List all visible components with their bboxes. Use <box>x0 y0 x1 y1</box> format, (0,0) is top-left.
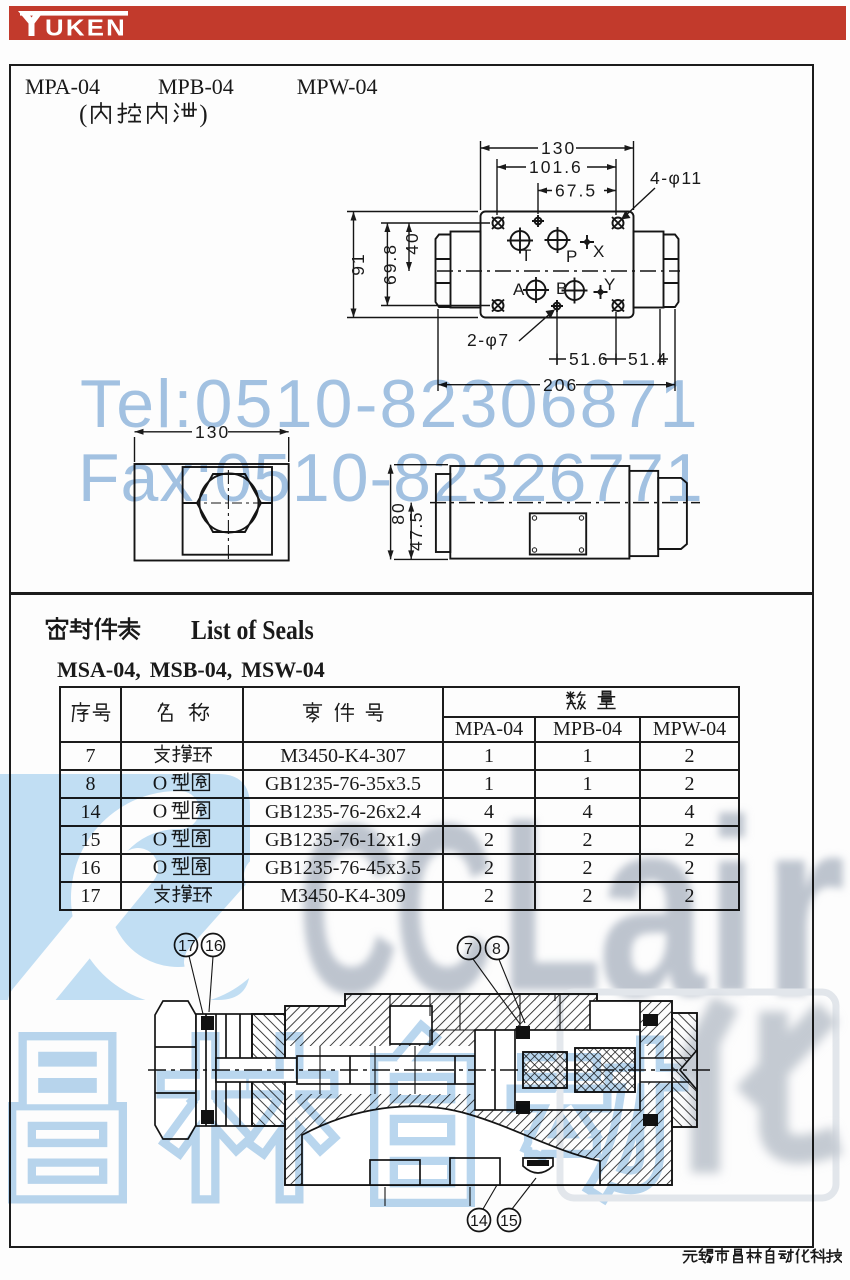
svg-text:130: 130 <box>541 138 576 158</box>
svg-text:A: A <box>513 280 525 299</box>
svg-text:7: 7 <box>464 941 473 958</box>
svg-text:2-φ7: 2-φ7 <box>467 330 510 350</box>
svg-text:206: 206 <box>543 375 578 395</box>
svg-text:51.4: 51.4 <box>628 349 668 369</box>
svg-text:17: 17 <box>178 938 196 955</box>
svg-text:B: B <box>556 279 567 298</box>
svg-text:P: P <box>566 247 577 266</box>
svg-text:Y: Y <box>604 275 615 294</box>
svg-text:40: 40 <box>402 231 422 254</box>
svg-text:T: T <box>521 246 531 265</box>
svg-text:X: X <box>593 242 604 261</box>
svg-text:16: 16 <box>205 938 223 955</box>
svg-text:91: 91 <box>348 252 368 275</box>
svg-text:47.5: 47.5 <box>406 511 426 551</box>
svg-text:69.8: 69.8 <box>380 243 400 285</box>
svg-text:101.6: 101.6 <box>529 157 583 177</box>
svg-text:51.6: 51.6 <box>569 349 609 369</box>
svg-text:80: 80 <box>388 501 408 524</box>
svg-text:15: 15 <box>500 1213 518 1230</box>
svg-text:14: 14 <box>470 1213 488 1230</box>
svg-text:67.5: 67.5 <box>555 181 597 201</box>
svg-text:130: 130 <box>195 422 230 442</box>
svg-text:4-φ11: 4-φ11 <box>650 168 703 188</box>
svg-text:8: 8 <box>492 941 501 958</box>
